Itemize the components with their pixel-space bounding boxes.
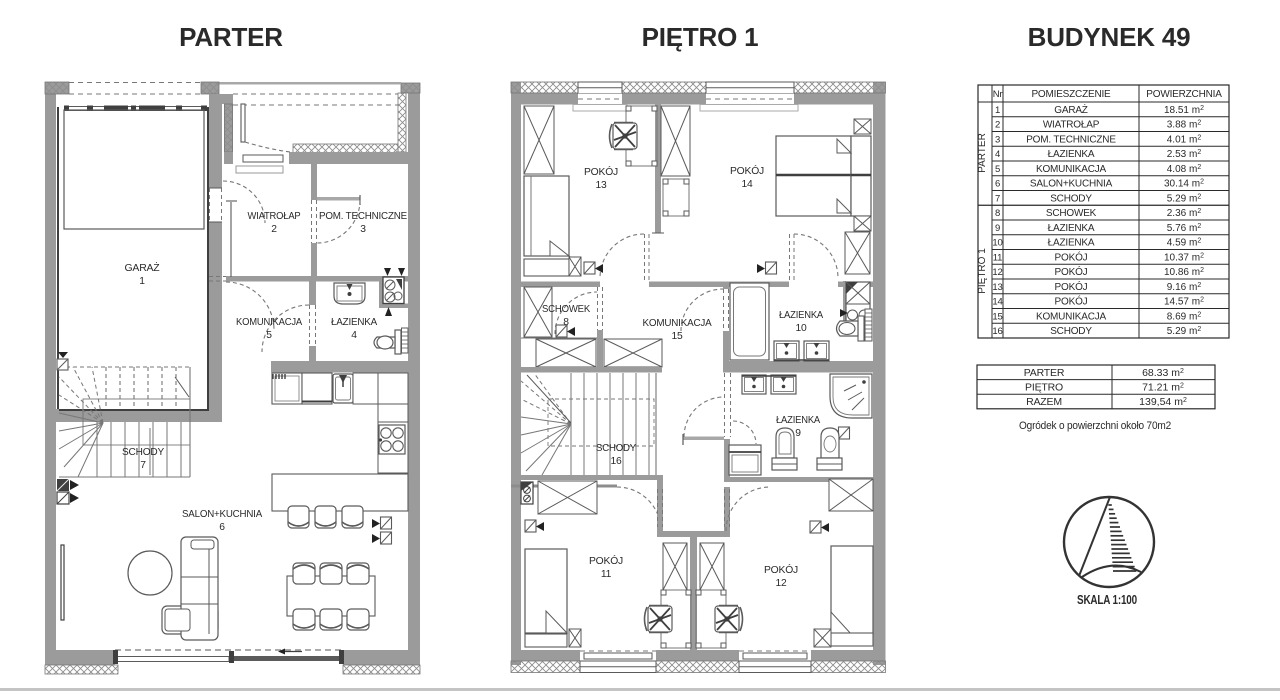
svg-text:1: 1 bbox=[995, 105, 1000, 116]
svg-text:15: 15 bbox=[992, 311, 1002, 322]
svg-text:30.14 m2: 30.14 m2 bbox=[1164, 179, 1204, 190]
svg-text:KOMUNIKACJA: KOMUNIKACJA bbox=[1036, 164, 1107, 175]
svg-text:SALON+KUCHNIA: SALON+KUCHNIA bbox=[182, 509, 262, 520]
svg-text:9: 9 bbox=[795, 428, 801, 439]
svg-text:11: 11 bbox=[601, 569, 612, 580]
svg-text:ŁAZIENKA: ŁAZIENKA bbox=[776, 415, 820, 426]
svg-text:5: 5 bbox=[266, 330, 272, 341]
svg-text:5.29 m2: 5.29 m2 bbox=[1167, 193, 1202, 204]
svg-text:KOMUNIKACJA: KOMUNIKACJA bbox=[1036, 311, 1107, 322]
svg-text:5.76 m2: 5.76 m2 bbox=[1167, 223, 1202, 234]
svg-text:POKÓJ: POKÓJ bbox=[1055, 250, 1088, 263]
svg-text:PIĘTRO 1: PIĘTRO 1 bbox=[642, 22, 759, 52]
svg-text:WIATROŁAP: WIATROŁAP bbox=[248, 211, 301, 222]
svg-text:139,54 m2: 139,54 m2 bbox=[1139, 396, 1187, 408]
svg-text:14: 14 bbox=[992, 297, 1002, 308]
svg-text:6: 6 bbox=[995, 179, 1000, 190]
svg-text:16: 16 bbox=[992, 326, 1002, 337]
svg-text:5.29 m2: 5.29 m2 bbox=[1167, 326, 1202, 337]
svg-text:SCHODY: SCHODY bbox=[1050, 193, 1092, 204]
svg-text:POKÓJ: POKÓJ bbox=[1055, 295, 1088, 308]
svg-text:8: 8 bbox=[995, 208, 1000, 219]
svg-text:PIĘTRO 1: PIĘTRO 1 bbox=[977, 248, 988, 294]
svg-text:4: 4 bbox=[995, 149, 1000, 160]
svg-text:KOMUNIKACJA: KOMUNIKACJA bbox=[643, 318, 712, 329]
svg-text:SCHOWEK: SCHOWEK bbox=[542, 304, 590, 315]
svg-text:SCHOWEK: SCHOWEK bbox=[1046, 208, 1097, 219]
svg-text:POKÓJ: POKÓJ bbox=[764, 563, 798, 576]
svg-text:13: 13 bbox=[595, 180, 607, 191]
svg-text:4.08 m2: 4.08 m2 bbox=[1167, 164, 1202, 175]
svg-text:ŁAZIENKA: ŁAZIENKA bbox=[1048, 238, 1095, 249]
svg-text:POKÓJ: POKÓJ bbox=[1055, 280, 1088, 293]
svg-text:12: 12 bbox=[992, 267, 1002, 278]
svg-text:10.37 m2: 10.37 m2 bbox=[1164, 252, 1204, 263]
svg-text:1: 1 bbox=[139, 276, 145, 287]
svg-text:2.36 m2: 2.36 m2 bbox=[1167, 208, 1202, 219]
svg-text:BUDYNEK 49: BUDYNEK 49 bbox=[1028, 22, 1191, 52]
svg-text:ŁAZIENKA: ŁAZIENKA bbox=[779, 310, 823, 321]
svg-text:PARTER: PARTER bbox=[1024, 367, 1065, 379]
svg-text:SCHODY: SCHODY bbox=[1050, 326, 1092, 337]
svg-text:8.69 m2: 8.69 m2 bbox=[1167, 311, 1202, 322]
svg-text:POKÓJ: POKÓJ bbox=[730, 164, 764, 177]
svg-text:ŁAZIENKA: ŁAZIENKA bbox=[1048, 149, 1095, 160]
svg-text:POWIERZCHNIA: POWIERZCHNIA bbox=[1146, 89, 1222, 100]
svg-text:PARTER: PARTER bbox=[977, 133, 988, 173]
svg-text:14: 14 bbox=[741, 179, 753, 190]
svg-text:2: 2 bbox=[995, 120, 1000, 131]
svg-text:KOMUNIKACJA: KOMUNIKACJA bbox=[236, 317, 302, 328]
svg-text:10: 10 bbox=[992, 238, 1002, 249]
svg-text:3.88 m2: 3.88 m2 bbox=[1167, 120, 1202, 131]
svg-text:ŁAZIENKA: ŁAZIENKA bbox=[1048, 223, 1095, 234]
svg-text:9: 9 bbox=[995, 223, 1000, 234]
svg-text:SCHODY: SCHODY bbox=[596, 443, 636, 454]
svg-text:4.59 m2: 4.59 m2 bbox=[1167, 238, 1202, 249]
svg-text:POKÓJ: POKÓJ bbox=[584, 165, 618, 178]
svg-text:Ogródek o powierzchni około 70: Ogródek o powierzchni około 70m2 bbox=[1019, 420, 1171, 432]
svg-text:PIĘTRO: PIĘTRO bbox=[1025, 381, 1063, 393]
svg-text:SKALA 1:100: SKALA 1:100 bbox=[1077, 593, 1137, 607]
svg-text:16: 16 bbox=[610, 456, 622, 467]
svg-text:4: 4 bbox=[351, 330, 357, 341]
svg-text:13: 13 bbox=[992, 282, 1002, 293]
svg-text:10.86 m2: 10.86 m2 bbox=[1164, 267, 1204, 278]
svg-text:2.53 m2: 2.53 m2 bbox=[1167, 149, 1202, 160]
svg-text:14.57 m2: 14.57 m2 bbox=[1164, 297, 1204, 308]
svg-text:PARTER: PARTER bbox=[179, 22, 283, 52]
svg-text:11: 11 bbox=[993, 252, 1002, 263]
svg-text:7: 7 bbox=[140, 460, 146, 471]
svg-text:5: 5 bbox=[995, 164, 1000, 175]
svg-text:4.01 m2: 4.01 m2 bbox=[1167, 134, 1202, 145]
svg-text:71.21 m2: 71.21 m2 bbox=[1142, 381, 1184, 393]
svg-text:8: 8 bbox=[563, 317, 569, 328]
svg-text:POKÓJ: POKÓJ bbox=[589, 554, 623, 567]
svg-text:12: 12 bbox=[775, 578, 787, 589]
svg-text:6: 6 bbox=[219, 522, 225, 533]
svg-text:POM. TECHNICZNE: POM. TECHNICZNE bbox=[1026, 134, 1116, 145]
svg-text:ŁAZIENKA: ŁAZIENKA bbox=[331, 317, 377, 328]
svg-text:7: 7 bbox=[995, 193, 1000, 204]
svg-text:68.33 m2: 68.33 m2 bbox=[1142, 367, 1184, 379]
svg-text:2: 2 bbox=[271, 224, 277, 235]
svg-text:18.51 m2: 18.51 m2 bbox=[1164, 105, 1204, 116]
svg-text:RAZEM: RAZEM bbox=[1026, 396, 1062, 408]
svg-text:15: 15 bbox=[671, 331, 683, 342]
svg-text:Nr: Nr bbox=[993, 89, 1003, 100]
svg-text:POKÓJ: POKÓJ bbox=[1055, 265, 1088, 278]
svg-text:SCHODY: SCHODY bbox=[122, 447, 164, 458]
svg-text:9.16 m2: 9.16 m2 bbox=[1167, 282, 1202, 293]
svg-text:3: 3 bbox=[995, 134, 1000, 145]
svg-text:POM. TECHNICZNE: POM. TECHNICZNE bbox=[319, 211, 407, 222]
svg-text:GARAŻ: GARAŻ bbox=[1054, 103, 1088, 116]
svg-text:SALON+KUCHNIA: SALON+KUCHNIA bbox=[1030, 179, 1113, 190]
svg-text:WIATROŁAP: WIATROŁAP bbox=[1043, 120, 1100, 131]
svg-text:POMIESZCZENIE: POMIESZCZENIE bbox=[1031, 89, 1111, 100]
svg-text:10: 10 bbox=[795, 323, 807, 334]
svg-text:GARAŻ: GARAŻ bbox=[125, 261, 160, 274]
svg-text:3: 3 bbox=[360, 224, 366, 235]
